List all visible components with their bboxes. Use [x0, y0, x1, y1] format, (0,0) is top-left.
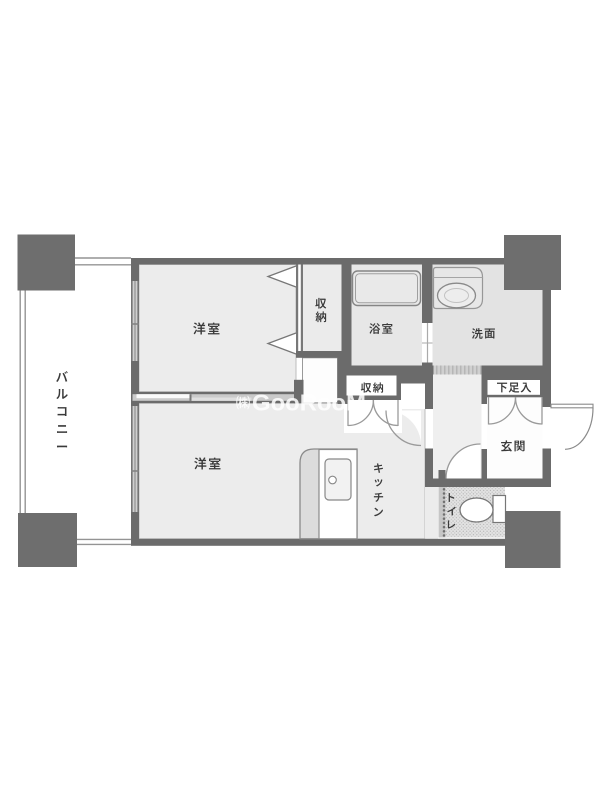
svg-text:GooRooM: GooRooM [252, 390, 366, 416]
